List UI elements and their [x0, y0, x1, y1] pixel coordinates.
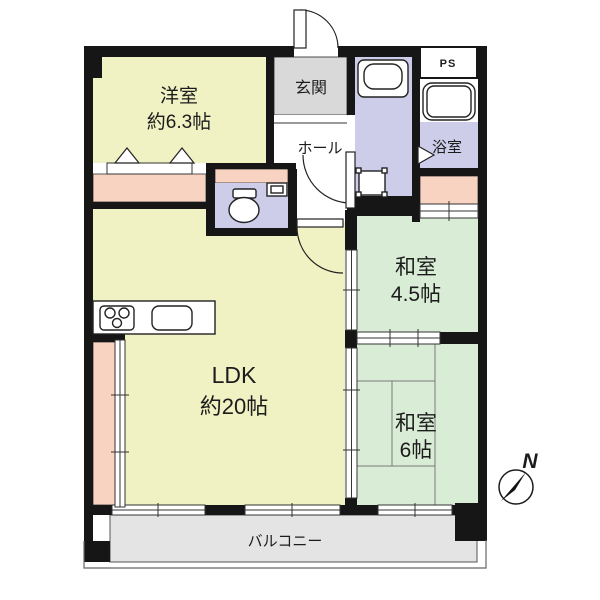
kitchen-counter [93, 301, 215, 334]
washing-machine-icon [356, 168, 387, 197]
label-balcony: バルコニー [248, 533, 323, 550]
compass-icon: N [499, 450, 538, 504]
room-western [93, 57, 266, 163]
label-ldk-name: LDK [212, 362, 257, 388]
room-ldk [93, 209, 345, 505]
washbasin-icon [358, 60, 408, 97]
kitchen-sink-icon [152, 306, 192, 330]
stove-icon [100, 306, 134, 330]
sliding-door-closet-japanese45 [420, 201, 478, 221]
window-bottom-center [245, 503, 340, 517]
sliding-door-japanese45-japanese6 [357, 329, 440, 347]
sliding-door-ldk-japanese6 [343, 348, 360, 498]
western-closet [93, 174, 206, 202]
label-japanese45-size: 4.5帖 [391, 283, 441, 306]
label-hall: ホール [297, 140, 342, 157]
sliding-door-ldk-japanese45 [343, 250, 360, 330]
bathtub-icon [423, 83, 475, 120]
compass-north-label: N [522, 450, 538, 473]
side-service-strip [93, 342, 115, 505]
label-japanese45-name: 和室 [395, 256, 437, 279]
label-ps: PS [440, 58, 457, 70]
window-bottom-left [112, 503, 205, 517]
window-bottom-right [378, 503, 452, 517]
label-japanese6-name: 和室 [395, 412, 437, 435]
entrance-door [294, 10, 338, 48]
toilet-shelf [215, 169, 288, 183]
label-western-name: 洋室 [160, 85, 198, 107]
label-ldk-size: 約20帖 [200, 394, 268, 419]
label-bathroom: 浴室 [432, 139, 462, 156]
floor-plan-canvas: N 洋室 約6.3帖 玄関 ホール PS 浴室 和室 4.5帖 LDK 約20帖… [0, 0, 600, 600]
label-western-size: 約6.3帖 [147, 111, 211, 133]
label-entrance: 玄関 [295, 79, 327, 97]
floor-plan: N 洋室 約6.3帖 玄関 ホール PS 浴室 和室 4.5帖 LDK 約20帖… [0, 0, 600, 600]
label-japanese6-size: 6帖 [400, 439, 433, 462]
bathroom-side-closet [420, 176, 478, 204]
